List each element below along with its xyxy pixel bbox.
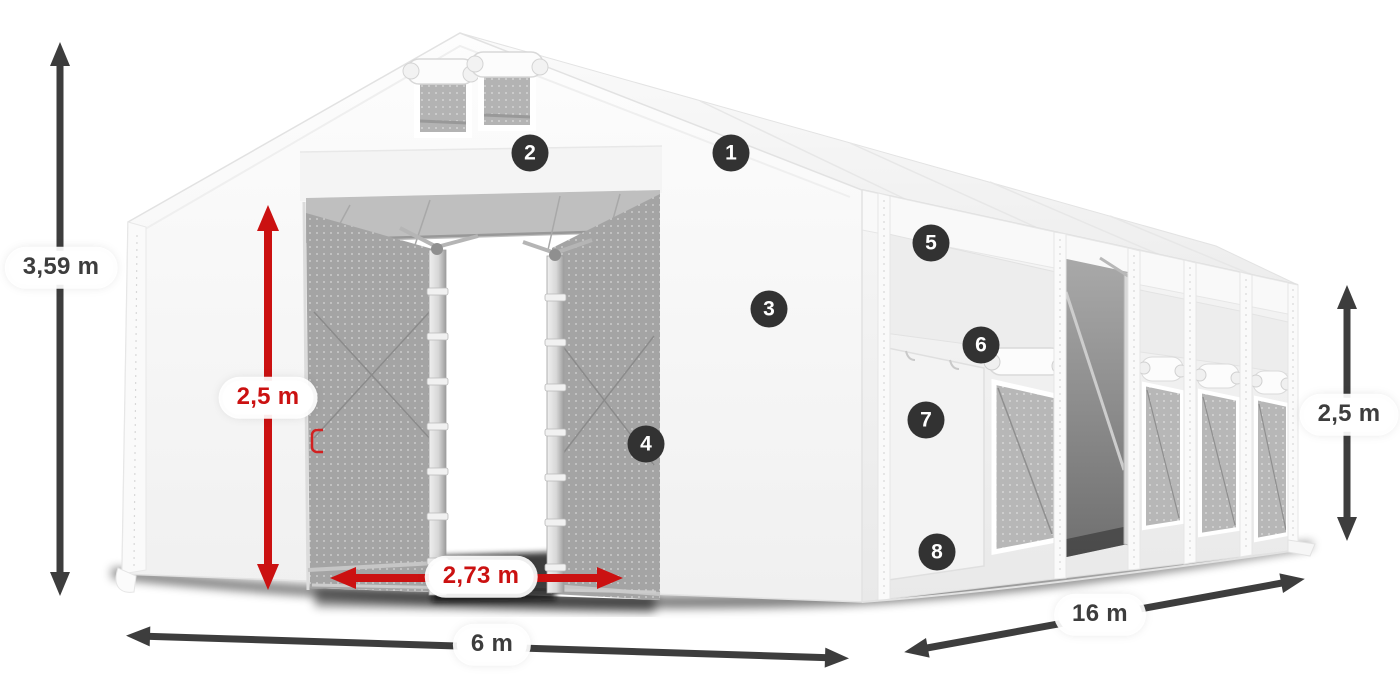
interior-mesh-right [552,194,660,600]
callout-7: 7 [908,402,945,439]
dimension-side-length: 16 m [1058,598,1142,632]
callout-8: 8 [919,534,956,571]
dimension-side-wall-height: 2,5 m [1304,398,1395,432]
side-entrance-opening [1062,258,1133,558]
dimension-front-width: 6 m [457,628,527,662]
callout-2: 2 [512,135,549,172]
gable-vent-left [403,59,479,135]
gable-vent-right [467,52,548,128]
front-entrance-opening [306,190,660,602]
callout-3: 3 [751,291,788,328]
tent-illustration [0,0,1400,700]
interior-mesh-left [306,213,436,592]
callout-1: 1 [713,135,750,172]
dimension-entrance-width: 2,73 m [429,560,534,594]
callout-5: 5 [913,225,950,262]
tent-dimension-diagram: 3,59 m 2,5 m 2,73 m 6 m 16 m 2,5 m 1 2 3… [0,0,1400,700]
dimension-total-height: 3,59 m [9,251,114,285]
dimension-entrance-height: 2,5 m [223,381,314,415]
callout-6: 6 [963,327,1000,364]
callout-4: 4 [628,426,665,463]
